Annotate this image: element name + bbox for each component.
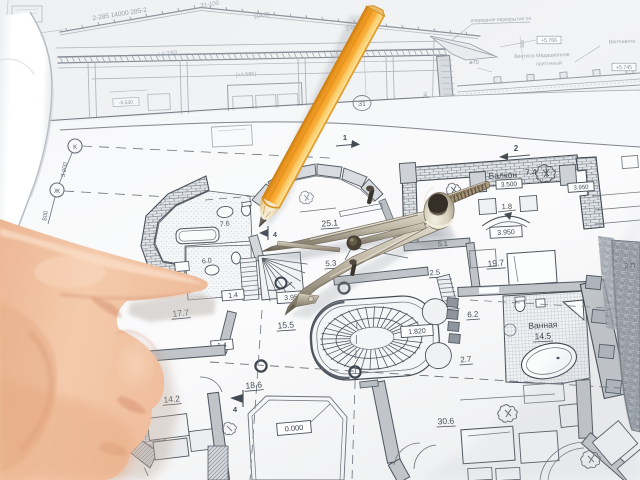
svg-text:ø70: ø70 [469, 60, 478, 66]
svg-text:4: 4 [273, 232, 277, 239]
svg-text:2.7: 2.7 [460, 355, 472, 365]
svg-text:15.5: 15.5 [277, 319, 294, 330]
svg-text:3.950: 3.950 [497, 229, 515, 237]
svg-text:18.6: 18.6 [245, 379, 263, 390]
svg-text:1: 1 [343, 133, 347, 142]
svg-text:1.4: 1.4 [228, 292, 238, 300]
svg-text:(+4.585): (+4.585) [235, 71, 256, 78]
svg-text:6.2: 6.2 [467, 310, 479, 320]
svg-text:7.4: 7.4 [525, 167, 538, 178]
svg-text:3.950: 3.950 [573, 185, 589, 192]
svg-text:+5.766: +5.766 [541, 38, 557, 44]
svg-text:7.6: 7.6 [220, 221, 231, 229]
svg-text:25.1: 25.1 [321, 217, 338, 228]
svg-text:приточный: приточный [536, 60, 562, 68]
svg-text:30.6: 30.6 [437, 416, 454, 427]
svg-text:1.8: 1.8 [501, 202, 512, 212]
svg-text:5.3: 5.3 [325, 259, 337, 269]
svg-text:6.0: 6.0 [202, 258, 213, 266]
svg-text:Вентшахта: Вентшахта [609, 39, 636, 46]
svg-text:-0.530: -0.530 [119, 100, 134, 107]
svg-text:31: 31 [358, 101, 366, 108]
svg-text:Ванная: Ванная [528, 319, 558, 331]
svg-text:2.5: 2.5 [429, 268, 440, 278]
svg-text:300: 300 [520, 39, 526, 48]
svg-text:Ж: Ж [54, 188, 60, 195]
svg-text:К: К [73, 144, 77, 151]
svg-text:2: 2 [514, 144, 519, 153]
svg-text:3.500: 3.500 [501, 181, 518, 189]
svg-text:1.820: 1.820 [408, 328, 426, 336]
svg-text:0.000: 0.000 [284, 423, 303, 434]
svg-text:+5.745: +5.745 [616, 65, 632, 71]
svg-text:14.5: 14.5 [534, 331, 551, 342]
